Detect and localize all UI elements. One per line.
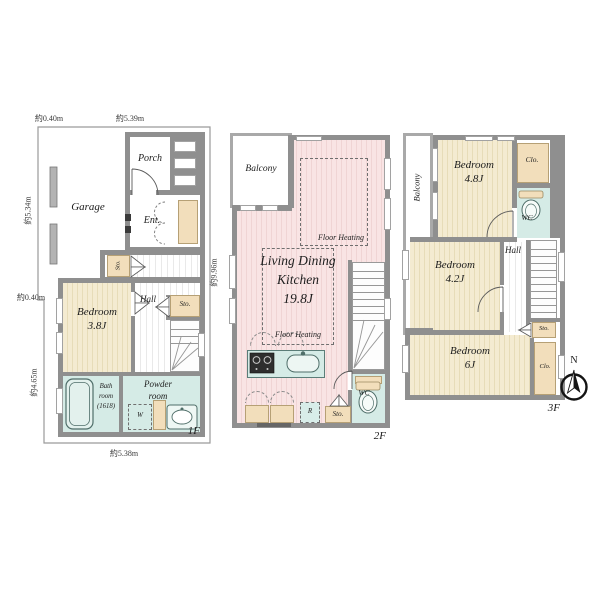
f1-entrance-label: Ent.: [130, 214, 174, 227]
f1-garage-label: Garage: [48, 200, 128, 214]
f3-bedroom6-label: Bedroom 6J: [415, 344, 525, 373]
f2-balcony-door: [240, 205, 256, 211]
f2-wc-label: WC: [353, 388, 375, 398]
f3-balcony-end-wall: [405, 328, 433, 335]
f1-step: [174, 158, 196, 169]
f3-sto-label: Sto.: [532, 325, 556, 333]
f1-step: [174, 141, 196, 152]
f2-dim-right: 約9.96m: [209, 252, 220, 294]
f2-balcony-door: [262, 205, 278, 211]
f1-bedroom-label: Bedroom 3.8J: [63, 305, 131, 334]
f1-powder-label: Powder room: [129, 379, 187, 402]
f2-sto-label: Sto.: [325, 410, 351, 419]
f2-floor-heating-label-b: Floor Heating: [264, 330, 332, 340]
f1-stair-treads: [171, 323, 199, 349]
f2-window: [296, 136, 322, 141]
f2-floor-label: 2F: [352, 429, 386, 443]
f1-hall-label: Hall: [132, 294, 164, 306]
floor-plan: 約0.40m 約5.39m 約5.34m 約0.40m 約4.65m 約5.38…: [0, 0, 600, 600]
f1-dim-left-upper: 約5.34m: [23, 190, 34, 232]
f1-window: [56, 332, 63, 354]
f1-step: [174, 175, 196, 186]
f1-dim-top-offset: 約0.40m: [26, 113, 72, 124]
f3-right-wall-fill: [550, 140, 560, 238]
f1-hall-upper-floor: [132, 255, 200, 277]
f2-fridge-label: R: [300, 407, 320, 416]
f1-dim-bottom: 約5.38m: [92, 448, 156, 459]
f1-sto-entry-label: Sto.: [114, 254, 122, 277]
f3-bedroom48-label: Bedroom 4.8J: [437, 158, 511, 187]
f1-washer-label: W: [128, 411, 152, 420]
f2-window: [384, 298, 391, 320]
f3-closet-upper-label: Clo.: [515, 155, 549, 165]
f3-window: [558, 355, 565, 379]
f2-counter-base: [257, 423, 291, 427]
f2-ldk-label: Living Dining Kitchen 19.8J: [228, 251, 368, 308]
f1-powder-cabinet: [153, 400, 166, 430]
f3-window: [465, 136, 493, 141]
f2-balcony-label: Balcony: [234, 163, 288, 175]
f3-stair-treads: [531, 243, 556, 317]
f1-front-door-gap: [132, 190, 156, 195]
f2-kitchen-counter: [247, 350, 325, 378]
f1-gate-hardware: [125, 226, 131, 233]
f1-stairs: [170, 320, 200, 372]
f1-dim-left-offset: 約0.40m: [8, 292, 54, 303]
f3-hall-label: Hall: [496, 245, 530, 257]
f1-dim-top-width: 約5.39m: [98, 113, 162, 124]
f3-window: [558, 252, 565, 282]
f3-window: [402, 250, 409, 280]
compass-ring: [562, 375, 587, 400]
f1-floor-label: 1F: [168, 424, 200, 438]
f1-window: [56, 388, 63, 414]
f1-shoe-cabinet: [178, 200, 198, 244]
f3-bedroom48-floor: [438, 140, 512, 237]
f3-wc-label: WC: [514, 213, 540, 223]
f1-window: [198, 333, 205, 357]
f1-sto-hall-label: Sto.: [170, 300, 200, 309]
f1-dim-left-lower: 約4.65m: [29, 362, 40, 404]
f2-cabinet: [245, 405, 269, 423]
f1-bath-label: Bath room (1618): [93, 382, 119, 412]
f2-wc-shelf: [355, 376, 382, 384]
f3-window: [497, 136, 515, 141]
f2-window: [384, 198, 391, 230]
f3-floor-label: 3F: [528, 401, 560, 415]
f1-window: [56, 298, 63, 324]
f1-porch-label: Porch: [128, 152, 172, 165]
f3-bedroom42-label: Bedroom 4.2J: [412, 258, 498, 287]
f2-window: [384, 158, 391, 190]
f3-stairs: [530, 240, 557, 320]
compass-needle-west: [568, 370, 575, 393]
compass-needle-east: [574, 370, 581, 393]
garage-pillar: [50, 224, 57, 264]
f3-balcony-label: Balcony: [411, 167, 422, 209]
f3-closet-lower-label: Clo.: [533, 363, 557, 371]
f2-cabinet: [270, 405, 294, 423]
f2-floor-heating-label-a: Floor Heating: [298, 233, 364, 243]
compass-north-label: N: [566, 354, 582, 367]
f2-balcony-wall: [288, 135, 294, 208]
f3-window: [402, 345, 409, 373]
